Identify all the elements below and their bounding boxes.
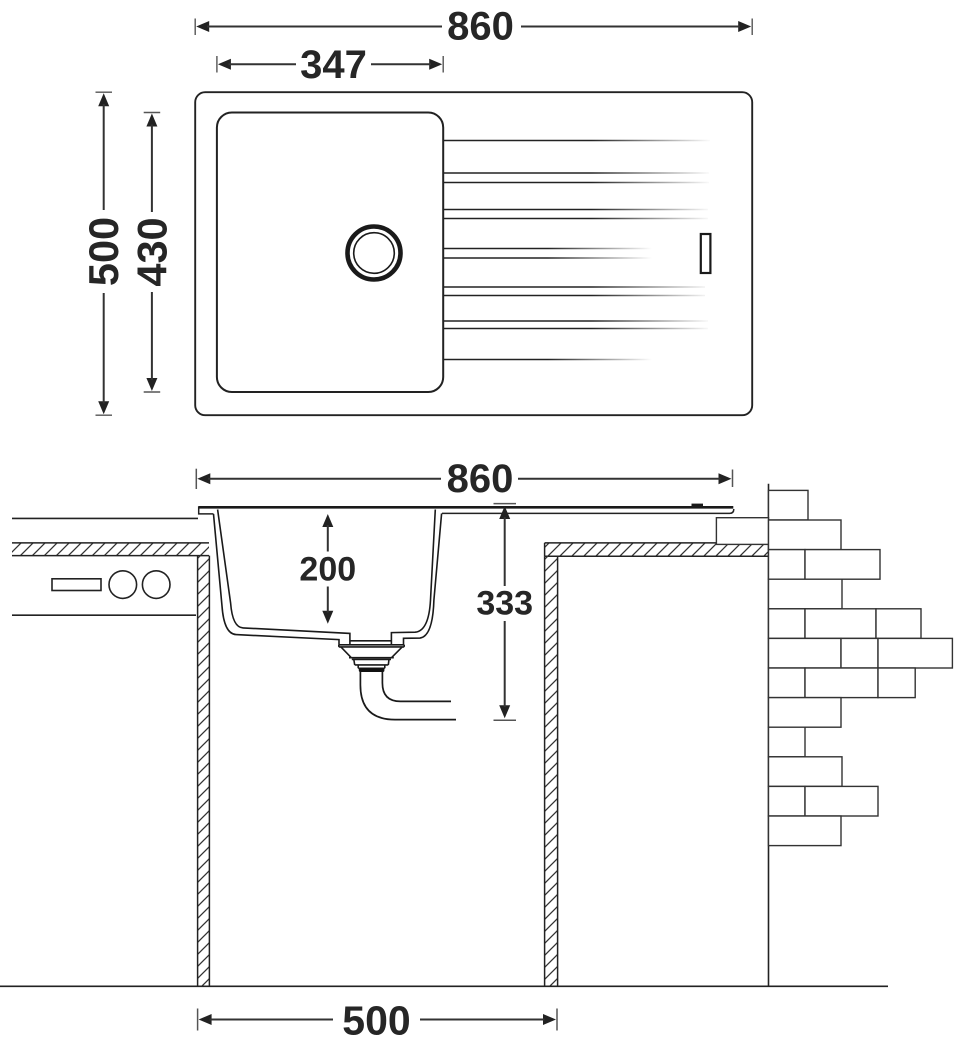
svg-text:200: 200 <box>299 550 356 588</box>
svg-text:333: 333 <box>476 584 533 622</box>
svg-text:860: 860 <box>447 5 514 49</box>
svg-text:500: 500 <box>342 998 410 1044</box>
svg-text:500: 500 <box>80 217 127 286</box>
svg-text:860: 860 <box>447 457 514 501</box>
svg-text:430: 430 <box>128 217 175 286</box>
svg-text:347: 347 <box>300 43 367 87</box>
